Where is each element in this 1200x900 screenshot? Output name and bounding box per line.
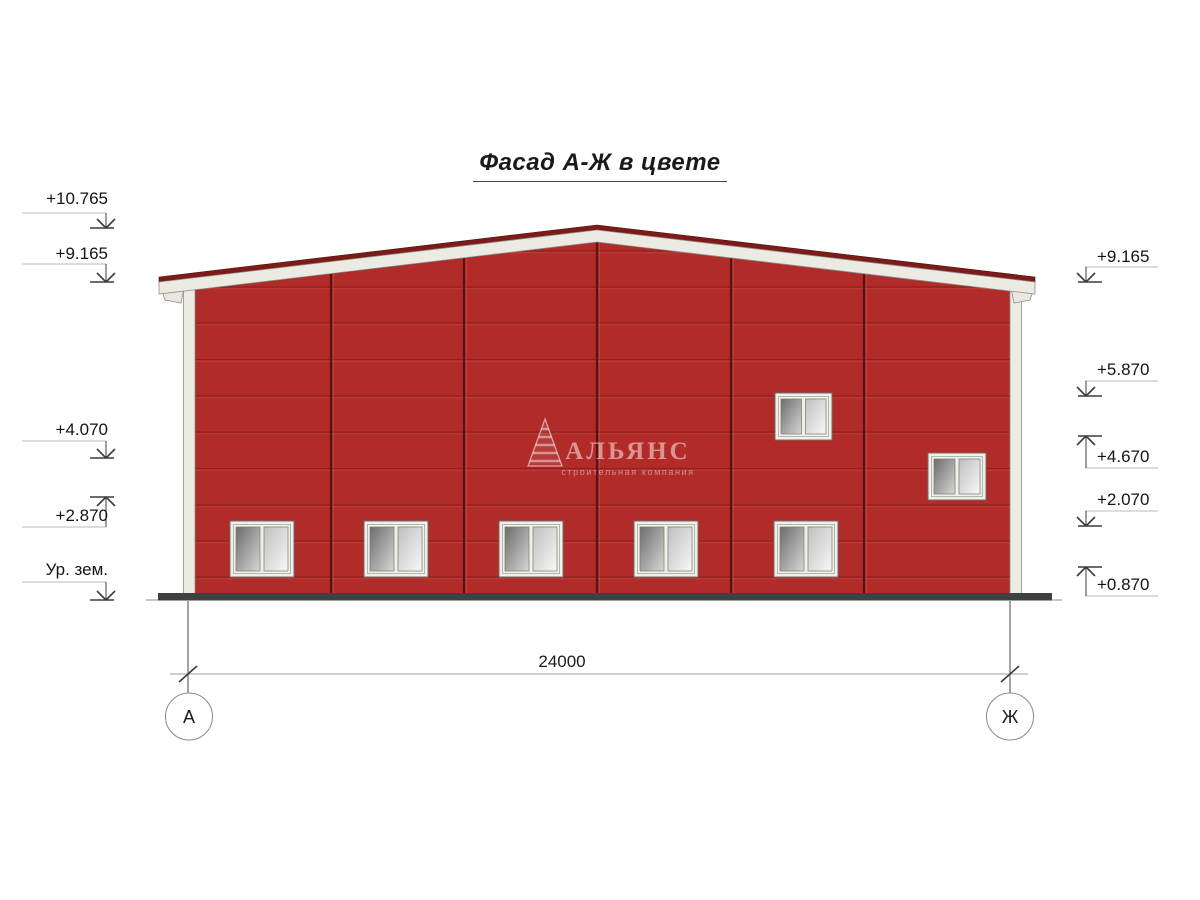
- elevation-arrow: [97, 449, 106, 458]
- window: [364, 521, 428, 577]
- watermark-tagline: строительная компания: [561, 467, 694, 477]
- elevation-label: +2.870: [16, 507, 108, 525]
- window: [774, 521, 838, 577]
- axis-marker-zh: Ж: [990, 707, 1030, 728]
- elevation-arrow: [1077, 436, 1086, 445]
- window: [499, 521, 563, 577]
- elevation-arrow: [97, 497, 106, 506]
- elevation-label: +4.070: [16, 421, 108, 439]
- elevation-arrow: [106, 449, 115, 458]
- elevation-arrow: [97, 591, 106, 600]
- elevation-label: +9.165: [16, 245, 108, 263]
- elevation-arrow: [1086, 387, 1095, 396]
- elevation-arrow: [1086, 273, 1095, 282]
- dimension-line: [170, 601, 1028, 693]
- corner-trim-left: [184, 288, 196, 594]
- elevation-label: +10.765: [16, 190, 108, 208]
- elevation-arrow: [1086, 567, 1095, 576]
- ground-strip: [158, 593, 1052, 601]
- drawing-title: Фасад А-Ж в цвете: [473, 149, 726, 182]
- elevation-label: +9.165: [1097, 248, 1200, 266]
- elevation-arrow: [1086, 436, 1095, 445]
- elevation-label: Ур. зем.: [16, 561, 108, 579]
- facade-drawing: АЛЬЯНС строительная компания: [0, 0, 1200, 900]
- drawing-canvas: АЛЬЯНС строительная компания Фасад А-Ж в: [0, 0, 1200, 900]
- axis-marker-a: А: [169, 707, 209, 728]
- elevation-label: +0.870: [1097, 576, 1200, 594]
- elevation-arrow: [97, 219, 106, 228]
- elevation-label: +2.070: [1097, 491, 1200, 509]
- elevation-arrow: [106, 497, 115, 506]
- window: [775, 393, 832, 440]
- elevation-arrow: [106, 273, 115, 282]
- elevation-arrow: [1086, 517, 1095, 526]
- elevation-arrow: [97, 273, 106, 282]
- watermark-company: АЛЬЯНС: [565, 438, 690, 465]
- elevation-label: +5.870: [1097, 361, 1200, 379]
- window: [928, 453, 986, 500]
- elevation-arrow: [1077, 567, 1086, 576]
- window: [230, 521, 294, 577]
- window: [634, 521, 698, 577]
- elevation-arrow: [106, 219, 115, 228]
- corner-trim-right: [1010, 288, 1022, 594]
- elevation-label: +4.670: [1097, 448, 1200, 466]
- dimension-value: 24000: [527, 652, 597, 672]
- elevation-arrow: [1077, 517, 1086, 526]
- elevation-arrow: [1077, 273, 1086, 282]
- elevation-arrow: [1077, 387, 1086, 396]
- elevation-arrow: [106, 591, 115, 600]
